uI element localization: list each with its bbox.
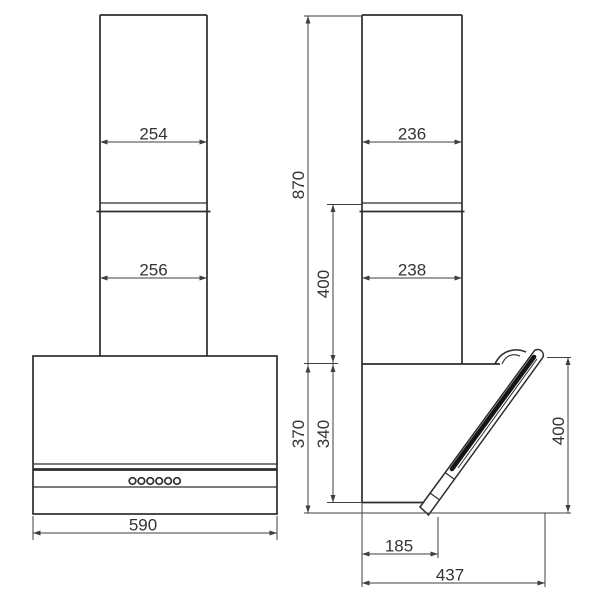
dim-label-front-chimney-upper-width: 254 (139, 125, 167, 144)
hinge-arc-inner (502, 355, 520, 364)
dim-label-side-chimney-upper-depth: 236 (398, 125, 426, 144)
glass-panel-dark-edge (452, 357, 534, 469)
control-buttons (129, 478, 180, 485)
front-body (33, 356, 277, 514)
control-button-dot (156, 478, 163, 485)
control-button-dot (138, 478, 145, 485)
glass-panel-open (420, 349, 543, 515)
dimension-400-340 (304, 205, 362, 503)
hinge-arc-outer (495, 350, 526, 364)
control-button-dot (165, 478, 172, 485)
dim-label-body-front-height: 370 (289, 420, 308, 448)
control-button-dot (174, 478, 181, 485)
dim-label-total-depth-open: 437 (436, 566, 464, 585)
front-chimney (97, 15, 211, 356)
dim-label-body-bottom-depth: 185 (385, 537, 413, 556)
side-view (360, 15, 544, 515)
side-chimney (360, 15, 465, 503)
dim-label-glass-panel-height: 400 (549, 417, 568, 445)
dim-label-side-chimney-lower-depth: 238 (398, 261, 426, 280)
hood-dimension-drawing: 254 256 590 236 238 870 400 370 340 400 … (0, 0, 600, 600)
control-button-dot (147, 478, 154, 485)
drawing-canvas: 254 256 590 236 238 870 400 370 340 400 … (0, 0, 600, 600)
dim-label-body-back-height: 340 (314, 420, 333, 448)
control-button-dot (129, 478, 136, 485)
dim-label-chimney-lower-section-height: 400 (314, 270, 333, 298)
dim-label-total-height: 870 (289, 171, 308, 199)
dim-label-front-chimney-lower-width: 256 (139, 261, 167, 280)
dim-label-front-total-width: 590 (129, 516, 157, 535)
